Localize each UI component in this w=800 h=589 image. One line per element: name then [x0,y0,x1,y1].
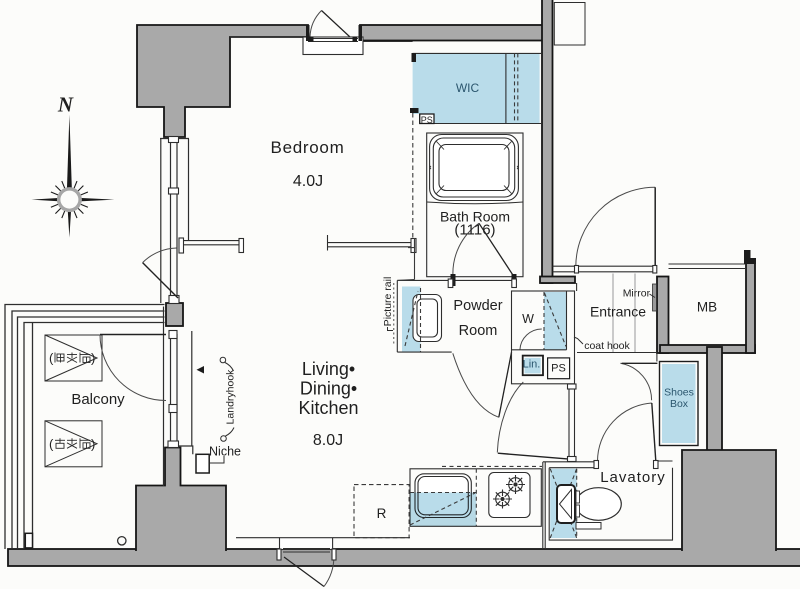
svg-text:(1116): (1116) [454,222,495,239]
svg-text:8.0J: 8.0J [313,432,343,449]
svg-text:Shoes: Shoes [664,387,694,399]
svg-text:): ) [91,351,95,366]
svg-text:(: ( [49,351,54,366]
svg-text:WIC: WIC [456,81,480,95]
svg-text:Picture rail: Picture rail [382,277,394,327]
svg-text:Balcony: Balcony [71,391,125,408]
svg-text:): ) [91,437,95,452]
svg-text:4.0J: 4.0J [293,173,323,190]
svg-text:W: W [522,312,534,326]
svg-text:MB: MB [697,300,717,315]
svg-text:R: R [377,506,387,521]
svg-text:Lin.: Lin. [523,359,541,371]
svg-text:Mirror: Mirror [623,288,651,300]
svg-text:coat hook: coat hook [584,340,630,352]
svg-text:Niche: Niche [209,445,241,459]
svg-text:Lavatory: Lavatory [600,469,666,486]
svg-text:Bedroom: Bedroom [271,138,345,157]
svg-text:Kitchen: Kitchen [298,398,358,418]
svg-text:PS: PS [421,115,433,125]
svg-text:PS: PS [551,363,566,375]
svg-text:Living•: Living• [302,359,355,379]
svg-text:Landryhook: Landryhook [225,369,237,425]
svg-text:(: ( [49,437,54,452]
svg-text:Box: Box [670,398,689,410]
svg-text:Room: Room [459,323,498,339]
svg-text:N: N [57,93,74,117]
svg-text:Dining•: Dining• [300,379,357,399]
svg-text:Entrance: Entrance [590,304,646,320]
svg-text:Powder: Powder [453,298,502,314]
